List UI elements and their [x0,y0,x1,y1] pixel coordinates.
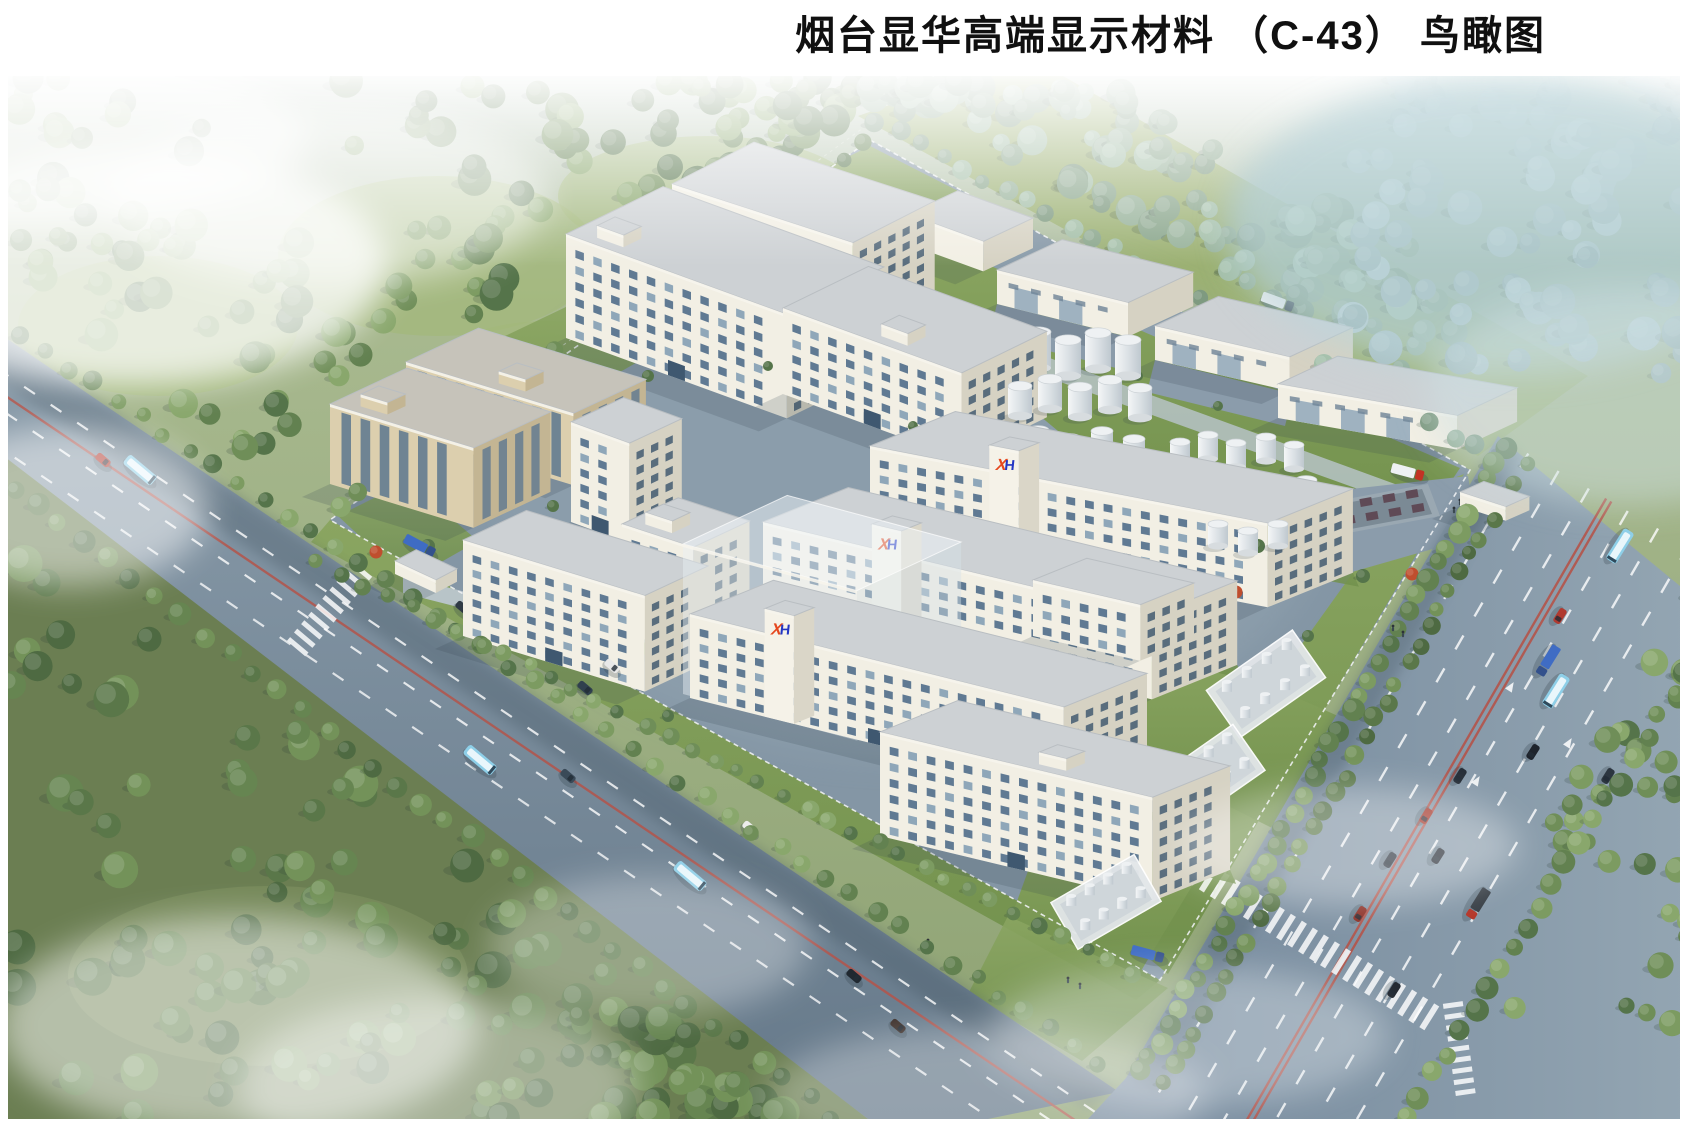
aerial-render-canvas: X H X H X H [8,76,1680,1119]
rendering-page: 烟台显华高端显示材料 （C-43） 鸟瞰图 X H X H X H [0,0,1686,1125]
person [1392,625,1395,632]
xh-logo: X H [994,456,1016,474]
person [1453,507,1456,514]
title-bar: 烟台显华高端显示材料 （C-43） 鸟瞰图 [0,0,1686,76]
svg-text:H: H [1004,458,1016,474]
person [1402,631,1405,638]
svg-text:H: H [779,622,791,638]
page-title: 烟台显华高端显示材料 （C-43） 鸟瞰图 [0,0,1686,58]
aerial-render: X H X H X H [8,76,1680,1119]
xh-logo: X H [770,620,792,638]
